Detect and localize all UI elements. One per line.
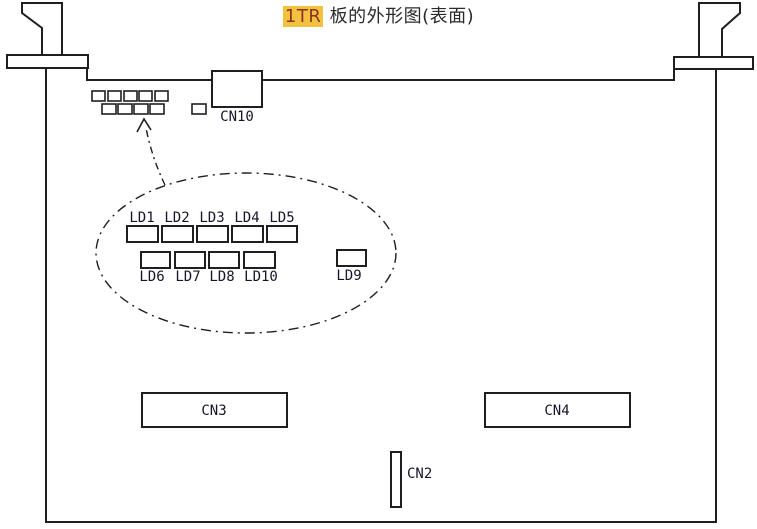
connector-cn2: [391, 452, 401, 507]
led-rect: [337, 250, 366, 266]
indicator-square: [192, 104, 206, 114]
indicator-square: [92, 91, 105, 101]
connector-cn3-label: CN3: [201, 403, 226, 419]
connector-cn10-label: CN10: [220, 109, 254, 125]
connector-cn2-label: CN2: [407, 466, 432, 482]
led-rect: [175, 252, 205, 268]
led-label: LD7: [175, 269, 200, 285]
right-ejector-base: [674, 57, 753, 69]
led-rect: [127, 226, 158, 242]
led-label: LD3: [199, 210, 224, 226]
led-label: LD6: [139, 269, 164, 285]
led-label: LD9: [336, 268, 361, 284]
led-label: LD4: [234, 210, 259, 226]
led-rect: [232, 226, 263, 242]
led-rect: [209, 252, 239, 268]
indicator-square: [124, 91, 137, 101]
indicator-square: [155, 91, 168, 101]
title-highlight: 1TR: [283, 6, 323, 27]
led-label: LD2: [164, 210, 189, 226]
led-label: LD5: [269, 210, 294, 226]
led-rect: [197, 226, 228, 242]
indicator-square: [150, 104, 164, 114]
connector-cn4-label: CN4: [544, 403, 569, 419]
led-label: LD10: [244, 269, 278, 285]
indicator-square: [108, 91, 121, 101]
indicator-square: [118, 104, 132, 114]
led-rect: [244, 252, 275, 268]
title-rest: 板的外形图(表面): [323, 6, 474, 27]
led-rect: [162, 226, 193, 242]
indicator-square: [134, 104, 148, 114]
led-rect: [267, 226, 297, 242]
connector-cn10: [212, 71, 262, 107]
board-outline-diagram: CN10 LD1 LD2 LD3 LD4 LD5 LD6: [0, 0, 757, 529]
led-row-top: LD1 LD2 LD3 LD4 LD5: [127, 210, 297, 242]
indicator-square: [102, 104, 116, 114]
led-rect: [141, 252, 170, 268]
led-label: LD8: [209, 269, 234, 285]
left-ejector-base: [7, 55, 88, 68]
led-label: LD1: [129, 210, 154, 226]
indicator-square: [139, 91, 152, 101]
page-title: 1TR 板的外形图(表面): [0, 5, 757, 29]
board-outline: [46, 68, 716, 522]
